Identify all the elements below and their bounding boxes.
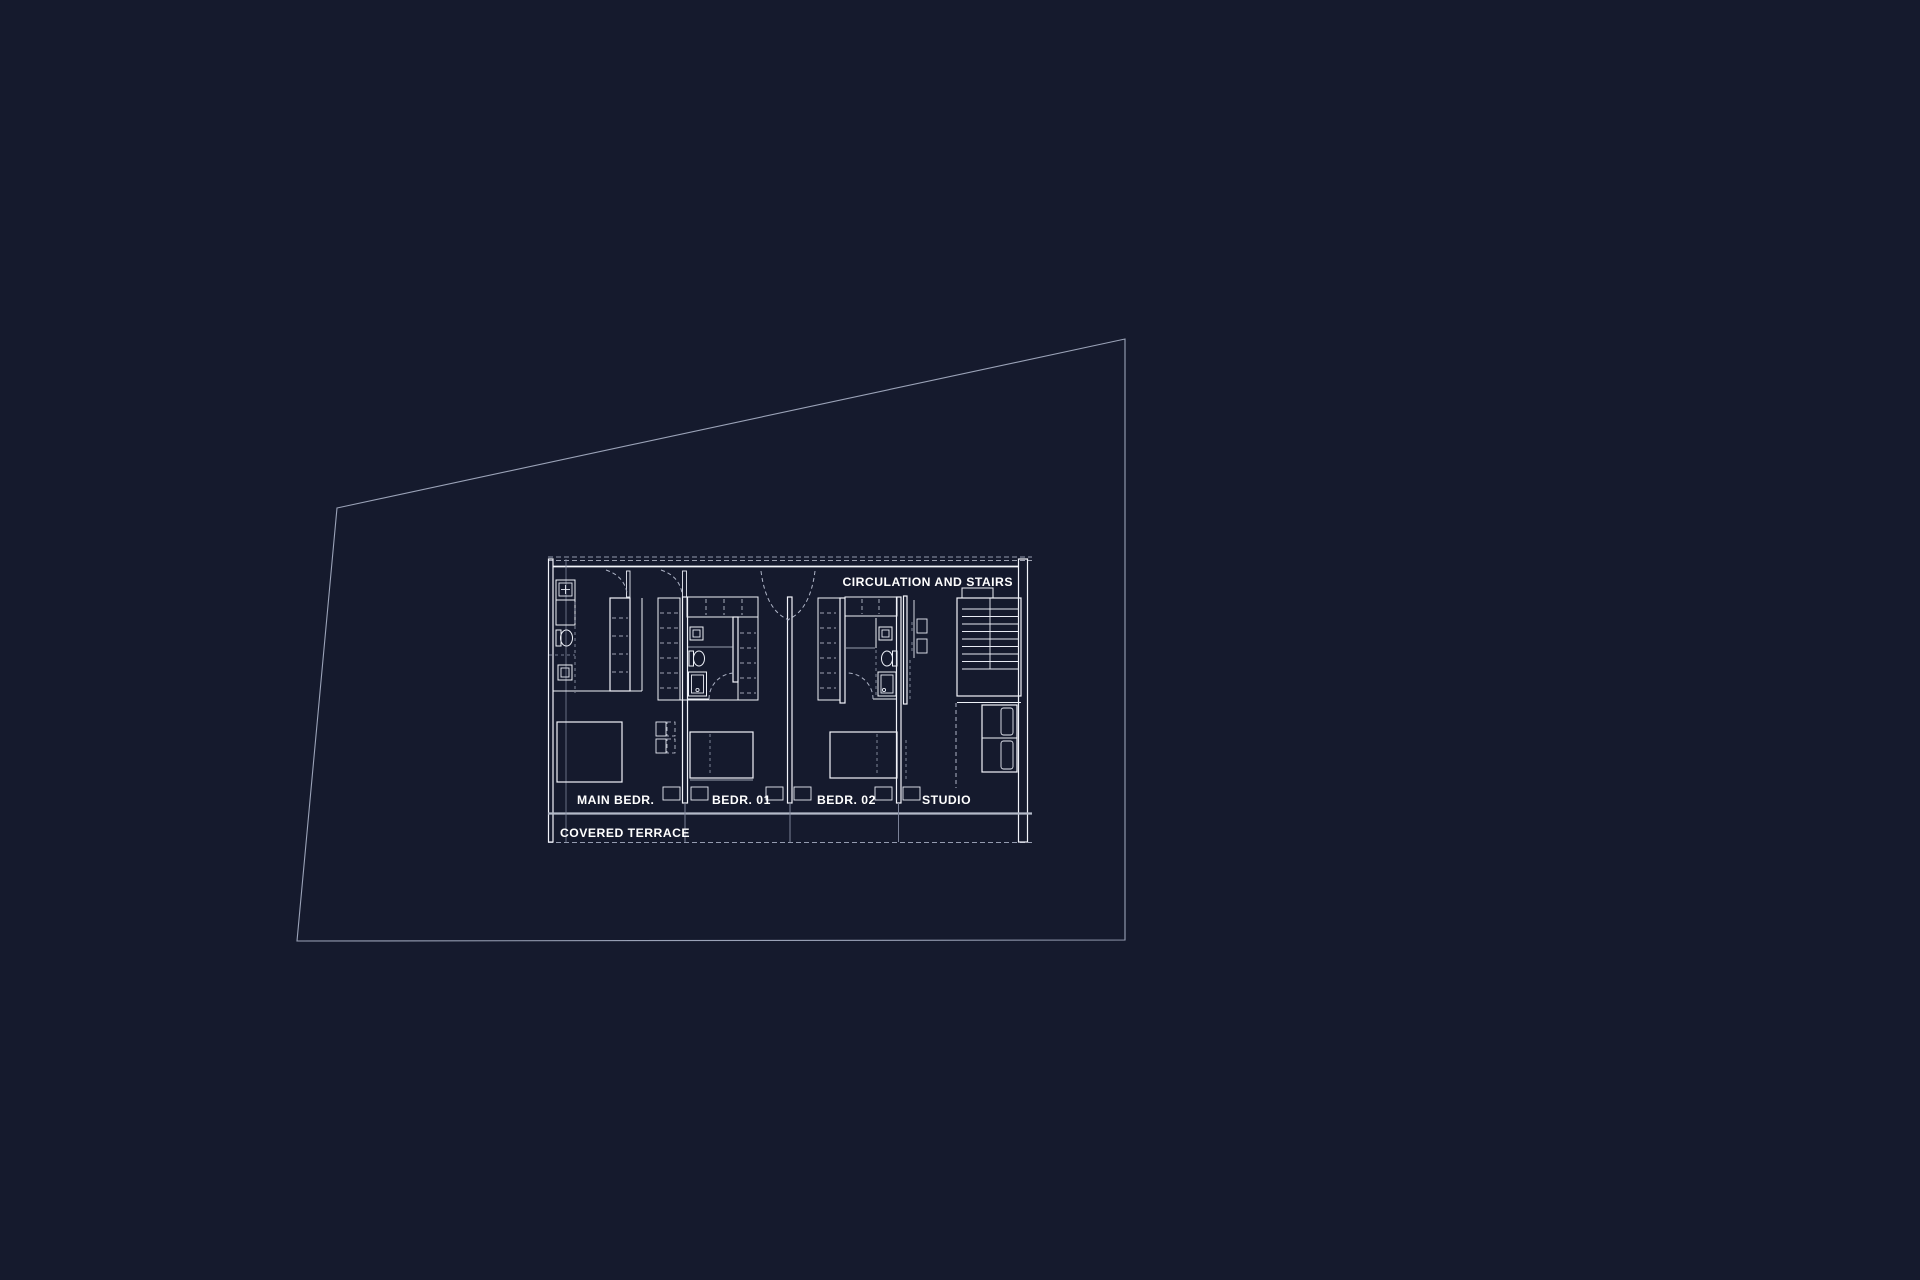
site-boundary	[297, 339, 1125, 941]
main-bedroom-closet	[610, 598, 642, 691]
label-covered-terrace: COVERED TERRACE	[560, 826, 690, 840]
blueprint-canvas: CIRCULATION AND STAIRS MAIN BEDR. BEDR. …	[0, 0, 1920, 1280]
floor-plan-drawing: CIRCULATION AND STAIRS MAIN BEDR. BEDR. …	[0, 0, 1920, 1280]
sofa-bed-symbol	[982, 705, 1017, 772]
label-circulation-and-stairs: CIRCULATION AND STAIRS	[842, 575, 1013, 589]
bed-symbols	[557, 722, 897, 782]
label-bedroom-01: BEDR. 01	[712, 793, 771, 807]
shower-symbol	[558, 665, 572, 680]
shower-symbol	[689, 672, 707, 696]
bedroom01-bathroom-pod	[658, 597, 758, 700]
bed-01	[690, 732, 753, 778]
label-studio: STUDIO	[922, 793, 971, 807]
room-labels: CIRCULATION AND STAIRS MAIN BEDR. BEDR. …	[560, 575, 1013, 840]
toilet-symbol	[556, 630, 573, 646]
nightstand-symbols	[656, 722, 675, 753]
label-main-bedroom: MAIN BEDR.	[577, 793, 654, 807]
toilet-symbol	[882, 651, 898, 666]
stairs-symbol	[957, 588, 1021, 703]
shower-symbol	[878, 672, 896, 696]
bed-02	[830, 732, 897, 778]
kitchenette-unit	[917, 639, 927, 653]
bed-main	[557, 722, 622, 782]
kitchenette-unit	[917, 619, 927, 633]
sink-symbol	[879, 627, 892, 640]
toilet-symbol	[689, 651, 705, 666]
studio-area	[904, 596, 1018, 788]
label-bedroom-02: BEDR. 02	[817, 793, 876, 807]
bedroom02-bathroom-pod	[818, 597, 897, 703]
door-swing-arcs	[606, 570, 815, 620]
sink-symbol	[690, 627, 703, 640]
